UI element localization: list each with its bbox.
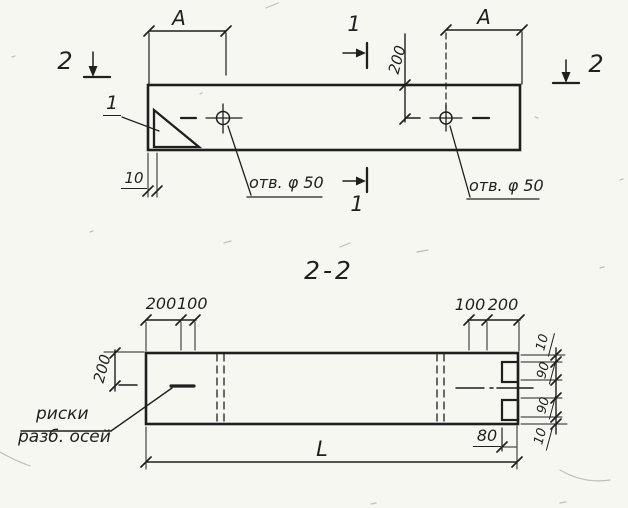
hole-projection-right xyxy=(437,354,444,423)
section-mark-2-right xyxy=(553,60,579,83)
section-mark-2-left xyxy=(84,52,110,77)
dim-length-label: L xyxy=(309,438,335,460)
plan-view xyxy=(84,25,579,199)
dim-topright xyxy=(464,315,524,351)
dim-80-label: 80 xyxy=(473,428,501,447)
dim-topleft xyxy=(141,315,200,351)
hole-right xyxy=(406,105,489,131)
hole-label-left: отв. φ 50 xyxy=(249,175,324,192)
section-mark-1-bottom-label: 1 xyxy=(347,193,367,215)
dim-a-left-label: A xyxy=(166,8,192,29)
axis-note-line2: разб. осей xyxy=(18,429,111,447)
section-title: 2-2 xyxy=(294,258,364,284)
dim-a-right-label: A xyxy=(471,7,497,28)
axis-note-line1: риски xyxy=(36,406,89,424)
hole-projection-left xyxy=(217,354,224,423)
notch-upper xyxy=(502,362,518,382)
dim-a-left xyxy=(144,26,231,84)
dim-a-right xyxy=(441,25,527,109)
hole-label-right: отв. φ 50 xyxy=(469,178,544,195)
dim-topleft-200-label: 200 xyxy=(143,296,179,313)
hole-left xyxy=(181,104,242,133)
section-mark-2-left-label: 2 xyxy=(53,49,77,74)
technical-drawing: 2 2 1 1 1 A A 200 10 отв. φ 50 отв. φ 50… xyxy=(0,0,628,508)
corner-triangle-mark xyxy=(154,110,199,147)
dim-10-plan-label: 10 xyxy=(121,171,147,189)
axis-line xyxy=(119,385,533,388)
beam-outline-plan xyxy=(148,85,520,150)
section-mark-2-right-label: 2 xyxy=(583,52,609,77)
dim-topright-200-label: 200 xyxy=(487,297,519,314)
dim-topleft-100-label: 100 xyxy=(177,296,207,313)
section-mark-1-bottom xyxy=(343,168,367,192)
section-mark-1-top-label: 1 xyxy=(344,13,364,35)
detail-ref-label: 1 xyxy=(103,94,121,116)
dim-topright-100-label: 100 xyxy=(454,297,486,314)
section-mark-1-top xyxy=(343,43,367,68)
notch-lower xyxy=(502,400,518,420)
